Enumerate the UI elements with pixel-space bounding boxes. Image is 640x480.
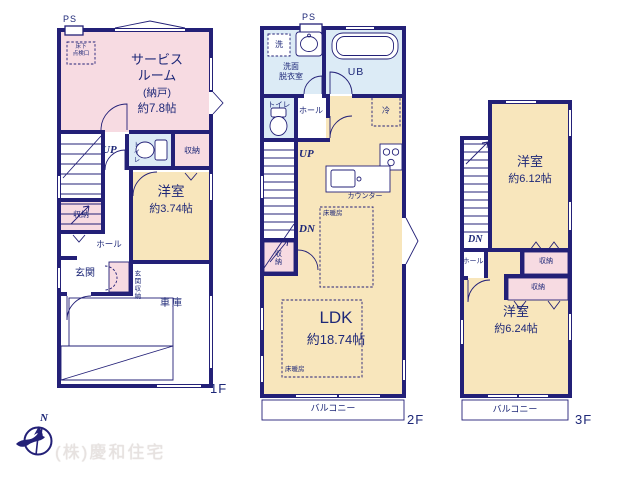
fridge-label: 冷: [372, 106, 400, 116]
bedroom-label: 洋室 約3.74帖: [133, 184, 209, 217]
washroom-label: 洗面 脱衣室: [262, 62, 320, 82]
ldk-label: LDK 約18.74帖: [276, 308, 396, 349]
dn-label: DN: [299, 223, 315, 236]
ps-label: PS: [63, 14, 77, 25]
washer-label: 洗: [268, 40, 290, 50]
balcony-label: バルコニー: [462, 404, 568, 415]
floor3-label: 3F: [575, 412, 592, 428]
closet-label: 収納: [175, 146, 209, 156]
closet-label: 収納: [508, 284, 568, 293]
compass-north-label: N: [40, 412, 48, 425]
closet-label: 収納: [524, 258, 568, 267]
hall-label: ホール: [81, 239, 137, 249]
underfloor-hatch-label: 床下 点検口: [67, 44, 95, 57]
floor1-labels: PS 床下 点検口 サービス ルーム (納戸) 約7.8帖 UP トイレ 収納 …: [57, 28, 227, 400]
balcony-label: バルコニー: [280, 403, 386, 414]
up-label: UP: [102, 144, 117, 157]
ps-label: PS: [302, 12, 316, 23]
up-label: UP: [299, 148, 314, 161]
toilet-label: トイレ: [131, 137, 139, 167]
floor1-label: 1F: [210, 381, 227, 397]
counter-label: カウンター: [330, 193, 400, 202]
garage-label: 車庫: [142, 298, 202, 310]
hall-label: ホール: [460, 258, 486, 267]
bedroom-label: 洋室 約6.12帖: [492, 154, 568, 186]
floor2-labels: PS 洗 洗面 脱衣室 UB トイレ ホール 冷 UP DN 収納 カウンター …: [260, 26, 432, 426]
floor-heating-label: 床暖房: [285, 366, 305, 374]
dn-label: DN: [468, 234, 482, 246]
bedroom-label: 洋室 約6.24帖: [468, 304, 564, 336]
floor2-label: 2F: [407, 412, 424, 428]
company-watermark: (株)慶和住宅: [55, 438, 165, 463]
closet-label: 収納: [273, 245, 282, 271]
service-room-label: サービス ルーム (納戸) 約7.8帖: [97, 52, 217, 116]
entrance-label: 玄関: [63, 268, 107, 280]
toilet-label: トイレ: [264, 100, 294, 109]
closet-label: 収納: [61, 210, 101, 220]
floor3-labels: 洋室 約6.12帖 DN ホール 収納 収納 洋室 約6.24帖 バルコニー: [460, 98, 595, 433]
bath-label: UB: [336, 66, 376, 79]
entrance-closet-label: 玄関収納: [132, 265, 140, 305]
floorplan-canvas: PS 床下 点検口 サービス ルーム (納戸) 約7.8帖 UP トイレ 収納 …: [0, 0, 640, 480]
hall-label: ホール: [296, 106, 326, 116]
floor-heating-label: 床暖房: [323, 210, 343, 218]
